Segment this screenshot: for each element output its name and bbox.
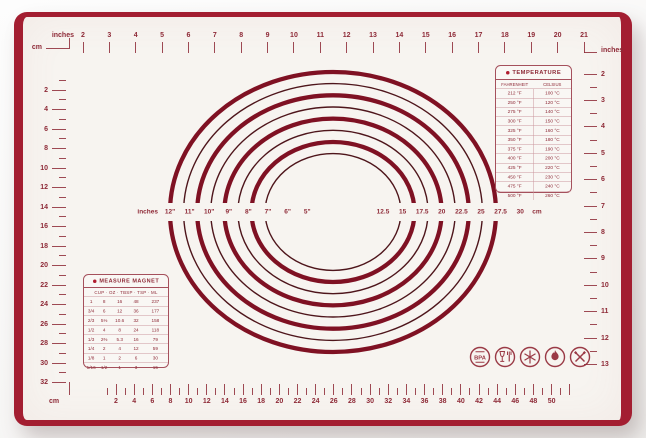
bottom-ruler-tick	[315, 384, 316, 395]
bottom-ruler-tick	[388, 384, 389, 395]
measure-value: 1/2	[98, 365, 110, 370]
measure-value: 8	[110, 327, 129, 332]
right-ruler-tick	[584, 285, 597, 286]
bottom-ruler-number: 36	[416, 397, 434, 406]
bottom-ruler-tick	[442, 384, 443, 395]
top-ruler-number: 19	[522, 31, 540, 40]
measure-value: 16	[110, 299, 129, 304]
right-ruler-number: 10	[601, 281, 617, 290]
top-ruler-tick	[135, 42, 136, 53]
bottom-ruler-minor-tick	[433, 388, 434, 395]
freezer-safe-icon	[519, 346, 541, 368]
temperature-table-title-text: TEMPERATURE	[512, 70, 561, 76]
left-ruler-minor-tick	[59, 216, 66, 217]
measure-value: 118	[143, 327, 168, 332]
bottom-ruler-number: 2	[107, 397, 125, 406]
left-ruler-number: 24	[28, 300, 48, 309]
left-ruler-number: 6	[28, 125, 48, 134]
temperature-value: 220 °C	[533, 163, 571, 172]
top-ruler-number: 13	[364, 31, 382, 40]
measure-value: 3/4	[84, 308, 98, 313]
bottom-ruler-minor-tick	[542, 388, 543, 395]
left-ruler-tick	[52, 90, 66, 91]
bottom-ruler-minor-tick	[324, 388, 325, 395]
bottom-ruler-minor-tick	[397, 388, 398, 395]
temperature-value: 140 °C	[533, 108, 571, 117]
right-ruler-tick	[584, 100, 597, 101]
temperature-row: 300 °F150 °C	[496, 116, 571, 125]
left-ruler-tick	[52, 324, 66, 325]
top-ruler-tick	[83, 42, 84, 53]
left-ruler-minor-tick	[59, 138, 66, 139]
bottom-ruler-minor-tick	[179, 388, 180, 395]
right-ruler-number: 2	[601, 70, 617, 79]
bottom-ruler-tick	[533, 384, 534, 395]
measure-value: 1/4	[84, 346, 98, 351]
top-ruler-tick	[584, 42, 585, 53]
right-ruler-number: 13	[601, 360, 617, 369]
circle-right-unit-label: cm	[526, 204, 548, 220]
measure-value: 5.3	[110, 337, 129, 342]
measure-value: 5⅓	[98, 318, 110, 323]
corner-bracket-top-right	[584, 52, 597, 53]
bottom-ruler-tick	[261, 384, 262, 395]
top-ruler-number: 5	[153, 31, 171, 40]
right-ruler-tick	[584, 364, 597, 365]
left-ruler-tick	[52, 109, 66, 110]
right-ruler-minor-tick	[590, 351, 597, 352]
temperature-table-headers: FAHRENHEIT CELSIUS	[496, 80, 571, 89]
right-ruler-tick	[584, 153, 597, 154]
celsius-column-header: CELSIUS	[534, 82, 572, 87]
measure-value: 158	[143, 318, 168, 323]
measure-value: 15	[143, 365, 168, 370]
top-ruler-tick	[109, 42, 110, 53]
temperature-row: 350 °F180 °C	[496, 135, 571, 144]
bottom-ruler-number: 50	[543, 397, 561, 406]
left-ruler-tick	[52, 265, 66, 266]
right-ruler-unit-label: inches	[601, 46, 635, 55]
top-ruler-tick	[214, 42, 215, 53]
temperature-row: 425 °F220 °C	[496, 163, 571, 172]
left-ruler-tick	[52, 226, 66, 227]
right-ruler-number: 8	[601, 228, 617, 237]
top-ruler-number: 4	[127, 31, 145, 40]
bottom-ruler-number: 44	[488, 397, 506, 406]
bottom-ruler-tick	[170, 384, 171, 395]
bottom-ruler-minor-tick	[560, 388, 561, 395]
bottom-ruler-number: 28	[343, 397, 361, 406]
bottom-ruler-minor-tick	[306, 388, 307, 395]
left-ruler-minor-tick	[59, 177, 66, 178]
bottom-ruler-minor-tick	[252, 388, 253, 395]
left-ruler-tick	[52, 304, 66, 305]
bottom-ruler-number: 4	[125, 397, 143, 406]
left-ruler-unit-label: cm	[24, 43, 42, 52]
left-ruler-number: 32	[28, 378, 48, 387]
measure-row: 1/24824118	[84, 325, 168, 334]
left-ruler-number: 30	[28, 359, 48, 368]
bottom-ruler-tick	[569, 384, 570, 395]
right-ruler-tick	[584, 338, 597, 339]
bottom-ruler-minor-tick	[469, 388, 470, 395]
bottom-ruler-number: 14	[216, 397, 234, 406]
right-ruler-tick	[584, 206, 597, 207]
bottom-ruler-tick	[370, 384, 371, 395]
bullet-icon	[93, 279, 97, 283]
food-safe-icon	[494, 346, 516, 368]
right-ruler-minor-tick	[590, 192, 597, 193]
left-ruler-number: 14	[28, 203, 48, 212]
top-ruler-tick	[241, 42, 242, 53]
bottom-ruler-minor-tick	[361, 388, 362, 395]
bottom-ruler-tick	[297, 384, 298, 395]
measure-value: 12	[129, 346, 142, 351]
right-ruler-minor-tick	[590, 219, 597, 220]
bottom-ruler-minor-tick	[234, 388, 235, 395]
right-ruler-number: 9	[601, 254, 617, 263]
measure-value: 2/3	[84, 318, 98, 323]
top-ruler-number: 15	[417, 31, 435, 40]
top-ruler-number: 6	[179, 31, 197, 40]
left-ruler-minor-tick	[59, 99, 66, 100]
temperature-value: 375 °F	[496, 145, 533, 154]
top-ruler-number: 11	[311, 31, 329, 40]
left-ruler-tick	[52, 207, 66, 208]
bottom-ruler-number: 30	[361, 397, 379, 406]
measure-row: 1/32⅔5.31679	[84, 334, 168, 343]
measure-table-title-text: MEASURE MAGNET	[99, 278, 159, 284]
temperature-value: 180 °C	[533, 135, 571, 144]
left-ruler-tick	[52, 187, 66, 188]
bottom-ruler-tick	[351, 384, 352, 395]
top-ruler-tick	[531, 42, 532, 53]
measure-value: 24	[129, 327, 142, 332]
left-ruler-number: 28	[28, 339, 48, 348]
bottom-ruler-number: 6	[143, 397, 161, 406]
bottom-ruler-number: 26	[325, 397, 343, 406]
measure-value: 30	[143, 356, 168, 361]
top-ruler-tick	[399, 42, 400, 53]
left-ruler-minor-tick	[59, 236, 66, 237]
temperature-row: 325 °F160 °C	[496, 126, 571, 135]
left-ruler-number: 10	[28, 164, 48, 173]
right-ruler-minor-tick	[590, 298, 597, 299]
right-ruler-minor-tick	[590, 245, 597, 246]
left-ruler-minor-tick	[59, 275, 66, 276]
measure-value: 1/3	[84, 337, 98, 342]
bottom-ruler-number: 22	[289, 397, 307, 406]
measure-value: 1	[98, 356, 110, 361]
right-ruler-number: 3	[601, 96, 617, 105]
temperature-row: 400 °F200 °C	[496, 154, 571, 163]
bottom-ruler-tick	[497, 384, 498, 395]
temperature-value: 200 °C	[533, 154, 571, 163]
measure-value: 2	[110, 356, 129, 361]
corner-bracket-bottom-left	[69, 382, 70, 395]
left-ruler-number: 16	[28, 222, 48, 231]
top-ruler-tick	[293, 42, 294, 53]
temperature-value: 160 °C	[533, 126, 571, 135]
measure-row: 1/161/21315	[84, 363, 168, 372]
left-ruler-minor-tick	[59, 119, 66, 120]
bottom-ruler-tick	[116, 384, 117, 395]
bottom-ruler-minor-tick	[524, 388, 525, 395]
left-ruler-tick	[52, 129, 66, 130]
bottom-ruler-number: 40	[452, 397, 470, 406]
top-ruler-number: 3	[100, 31, 118, 40]
corner-bracket-top-left	[69, 38, 70, 49]
measure-table-headers: CUP · OZ · TBSP · TSP · ML	[84, 288, 168, 297]
temperature-value: 300 °F	[496, 117, 533, 126]
temperature-value: 260 °C	[533, 191, 571, 200]
measure-value: 177	[143, 308, 168, 313]
temperature-value: 120 °C	[533, 98, 571, 107]
left-ruler-minor-tick	[59, 333, 66, 334]
top-ruler-number: 14	[390, 31, 408, 40]
measure-value: 12	[110, 308, 129, 313]
measure-value: 4	[110, 346, 129, 351]
top-ruler-number: 21	[575, 31, 593, 40]
bpa-free-icon: BPA	[469, 346, 491, 368]
top-ruler-number: 16	[443, 31, 461, 40]
temperature-value: 230 °C	[533, 173, 571, 182]
top-ruler-tick	[267, 42, 268, 53]
bottom-ruler-minor-tick	[288, 388, 289, 395]
temperature-value: 212 °F	[496, 89, 533, 98]
bottom-ruler-number: 18	[252, 397, 270, 406]
bottom-ruler-minor-tick	[215, 388, 216, 395]
mat-markings-layer: inches cm inches cm inches12"11"10"9"8"7…	[0, 0, 646, 438]
temperature-value: 500 °F	[496, 191, 533, 200]
left-ruler-minor-tick	[59, 294, 66, 295]
temperature-conversion-table: TEMPERATURE FAHRENHEIT CELSIUS 212 °F100…	[495, 65, 572, 193]
bottom-ruler-tick	[188, 384, 189, 395]
bottom-ruler-tick	[479, 384, 480, 395]
corner-bracket-top-left	[46, 48, 69, 49]
right-ruler-tick	[584, 232, 597, 233]
top-ruler-number: 12	[338, 31, 356, 40]
left-ruler-number: 8	[28, 144, 48, 153]
measure-value: 1/8	[84, 356, 98, 361]
measure-value: 1/16	[84, 365, 98, 370]
temperature-value: 250 °F	[496, 98, 533, 107]
bottom-ruler-unit-label: cm	[44, 397, 64, 406]
right-ruler-number: 6	[601, 175, 617, 184]
right-ruler-minor-tick	[590, 166, 597, 167]
bottom-ruler-minor-tick	[125, 388, 126, 395]
bottom-ruler-number: 42	[470, 397, 488, 406]
measure-value: 1/2	[84, 327, 98, 332]
right-ruler-tick	[584, 74, 597, 75]
measure-row: 3/461236177	[84, 306, 168, 315]
measure-value: 3	[129, 365, 142, 370]
measure-value: 6	[129, 356, 142, 361]
circle-diameter-labels: inches12"11"10"9"8"7"6"5"12.51517.52022.…	[120, 203, 556, 221]
bottom-ruler-tick	[224, 384, 225, 395]
right-ruler-number: 5	[601, 149, 617, 158]
measure-value: 1	[84, 299, 98, 304]
measure-value: 6	[98, 308, 110, 313]
measure-value: 2	[98, 346, 110, 351]
top-ruler-tick	[346, 42, 347, 53]
top-ruler-number: 2	[74, 31, 92, 40]
bottom-ruler-number: 48	[524, 397, 542, 406]
bottom-ruler-tick	[243, 384, 244, 395]
temperature-value: 350 °F	[496, 135, 533, 144]
temperature-value: 275 °F	[496, 108, 533, 117]
top-ruler-number: 8	[232, 31, 250, 40]
top-ruler-tick	[452, 42, 453, 53]
measure-value: 32	[129, 318, 142, 323]
temperature-value: 150 °C	[533, 117, 571, 126]
bottom-ruler-number: 10	[180, 397, 198, 406]
measure-value: 16	[129, 337, 142, 342]
left-ruler-number: 2	[28, 86, 48, 95]
bottom-ruler-minor-tick	[506, 388, 507, 395]
bottom-ruler-number: 12	[198, 397, 216, 406]
temperature-value: 100 °C	[533, 89, 571, 98]
right-ruler-tick	[584, 179, 597, 180]
temperature-value: 450 °F	[496, 173, 533, 182]
left-ruler-tick	[52, 343, 66, 344]
temperature-row: 375 °F190 °C	[496, 144, 571, 153]
left-ruler-number: 20	[28, 261, 48, 270]
bottom-ruler-minor-tick	[161, 388, 162, 395]
right-ruler-tick	[584, 311, 597, 312]
left-ruler-number: 18	[28, 242, 48, 251]
bottom-ruler-minor-tick	[107, 388, 108, 395]
bottom-ruler-tick	[333, 384, 334, 395]
bottom-ruler-tick	[152, 384, 153, 395]
bottom-ruler-minor-tick	[488, 388, 489, 395]
top-ruler-number: 9	[259, 31, 277, 40]
bottom-ruler-minor-tick	[270, 388, 271, 395]
bottom-ruler-minor-tick	[451, 388, 452, 395]
temperature-value: 190 °C	[533, 145, 571, 154]
temperature-value: 400 °F	[496, 154, 533, 163]
measure-value: 4	[98, 327, 110, 332]
bottom-ruler-minor-tick	[342, 388, 343, 395]
left-ruler-minor-tick	[59, 80, 66, 81]
top-ruler-tick	[557, 42, 558, 53]
top-ruler-number: 18	[496, 31, 514, 40]
top-ruler-number: 10	[285, 31, 303, 40]
left-ruler-tick	[52, 246, 66, 247]
measure-row: 1/4241259	[84, 344, 168, 353]
top-ruler-tick	[425, 42, 426, 53]
temperature-value: 240 °C	[533, 182, 571, 191]
right-ruler-number: 11	[601, 307, 617, 316]
temperature-value: 325 °F	[496, 126, 533, 135]
temperature-row: 500 °F260 °C	[496, 191, 571, 200]
left-ruler-minor-tick	[59, 372, 66, 373]
measure-value: 59	[143, 346, 168, 351]
bottom-ruler-number: 32	[379, 397, 397, 406]
right-ruler-tick	[584, 258, 597, 259]
top-ruler-tick	[320, 42, 321, 53]
top-ruler-tick	[478, 42, 479, 53]
left-ruler-tick	[52, 363, 66, 364]
measure-table-title: MEASURE MAGNET	[84, 275, 168, 288]
temperature-row: 212 °F100 °C	[496, 89, 571, 98]
left-ruler-tick	[52, 148, 66, 149]
measure-row: 2/35⅓10.632158	[84, 315, 168, 324]
bottom-ruler-number: 24	[307, 397, 325, 406]
bottom-ruler-number: 8	[161, 397, 179, 406]
temperature-table-title: TEMPERATURE	[496, 66, 571, 80]
bottom-ruler-minor-tick	[379, 388, 380, 395]
bottom-ruler-tick	[551, 384, 552, 395]
top-ruler-tick	[162, 42, 163, 53]
bottom-ruler-number: 38	[434, 397, 452, 406]
right-ruler-number: 4	[601, 122, 617, 131]
left-ruler-minor-tick	[59, 197, 66, 198]
bottom-ruler-tick	[279, 384, 280, 395]
circle-inch-label: 5"	[294, 204, 320, 220]
svg-text:BPA: BPA	[474, 355, 486, 361]
left-ruler-minor-tick	[59, 158, 66, 159]
measure-value: 237	[143, 299, 168, 304]
top-ruler-number: 17	[470, 31, 488, 40]
left-ruler-number: 12	[28, 183, 48, 192]
temperature-row: 275 °F140 °C	[496, 107, 571, 116]
bottom-ruler-number: 20	[270, 397, 288, 406]
left-ruler-tick	[52, 285, 66, 286]
top-ruler-tick	[504, 42, 505, 53]
right-ruler-number: 12	[601, 334, 617, 343]
measure-value: 10.6	[110, 318, 129, 323]
bottom-ruler-tick	[206, 384, 207, 395]
left-ruler-minor-tick	[59, 255, 66, 256]
top-ruler-number: 20	[549, 31, 567, 40]
temperature-row: 450 °F230 °C	[496, 172, 571, 181]
left-ruler-number: 22	[28, 281, 48, 290]
bottom-ruler-tick	[134, 384, 135, 395]
temperature-row: 475 °F240 °C	[496, 181, 571, 190]
top-ruler-tick	[373, 42, 374, 53]
measure-value: 36	[129, 308, 142, 313]
bottom-ruler-minor-tick	[415, 388, 416, 395]
bottom-ruler-tick	[515, 384, 516, 395]
right-ruler-minor-tick	[590, 140, 597, 141]
bottom-ruler-tick	[424, 384, 425, 395]
left-ruler-minor-tick	[59, 314, 66, 315]
fahrenheit-column-header: FAHRENHEIT	[496, 82, 534, 87]
measure-value: 79	[143, 337, 168, 342]
left-ruler-tick	[52, 382, 66, 383]
bottom-ruler-tick	[460, 384, 461, 395]
left-ruler-tick	[52, 168, 66, 169]
left-ruler-number: 26	[28, 320, 48, 329]
measure-value: 1	[110, 365, 129, 370]
left-ruler-number: 4	[28, 105, 48, 114]
temperature-value: 425 °F	[496, 163, 533, 172]
measure-value: 8	[98, 299, 110, 304]
bottom-ruler-number: 16	[234, 397, 252, 406]
right-ruler-number: 7	[601, 202, 617, 211]
circle-left-unit-label: inches	[120, 204, 158, 220]
measure-conversion-table: MEASURE MAGNET CUP · OZ · TBSP · TSP · M…	[83, 274, 169, 368]
bullet-icon	[506, 71, 510, 75]
bottom-ruler-number: 34	[397, 397, 415, 406]
bottom-ruler-minor-tick	[143, 388, 144, 395]
bottom-ruler-tick	[406, 384, 407, 395]
left-ruler-minor-tick	[59, 353, 66, 354]
right-ruler-minor-tick	[590, 87, 597, 88]
top-ruler-tick	[188, 42, 189, 53]
measure-row: 181648237	[84, 297, 168, 306]
